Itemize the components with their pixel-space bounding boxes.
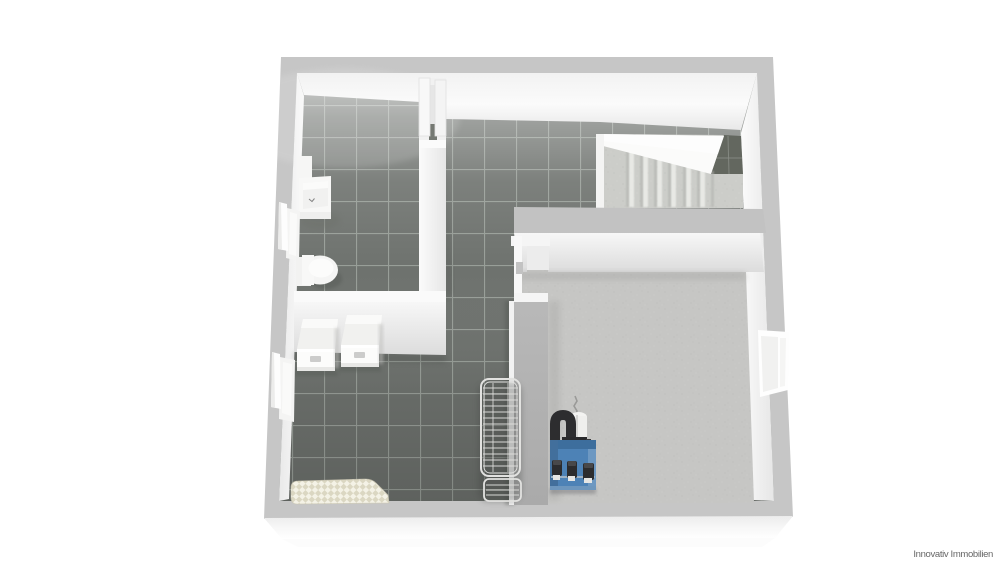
- svg-text:Innovativ Immobilien: Innovativ Immobilien: [913, 549, 993, 560]
